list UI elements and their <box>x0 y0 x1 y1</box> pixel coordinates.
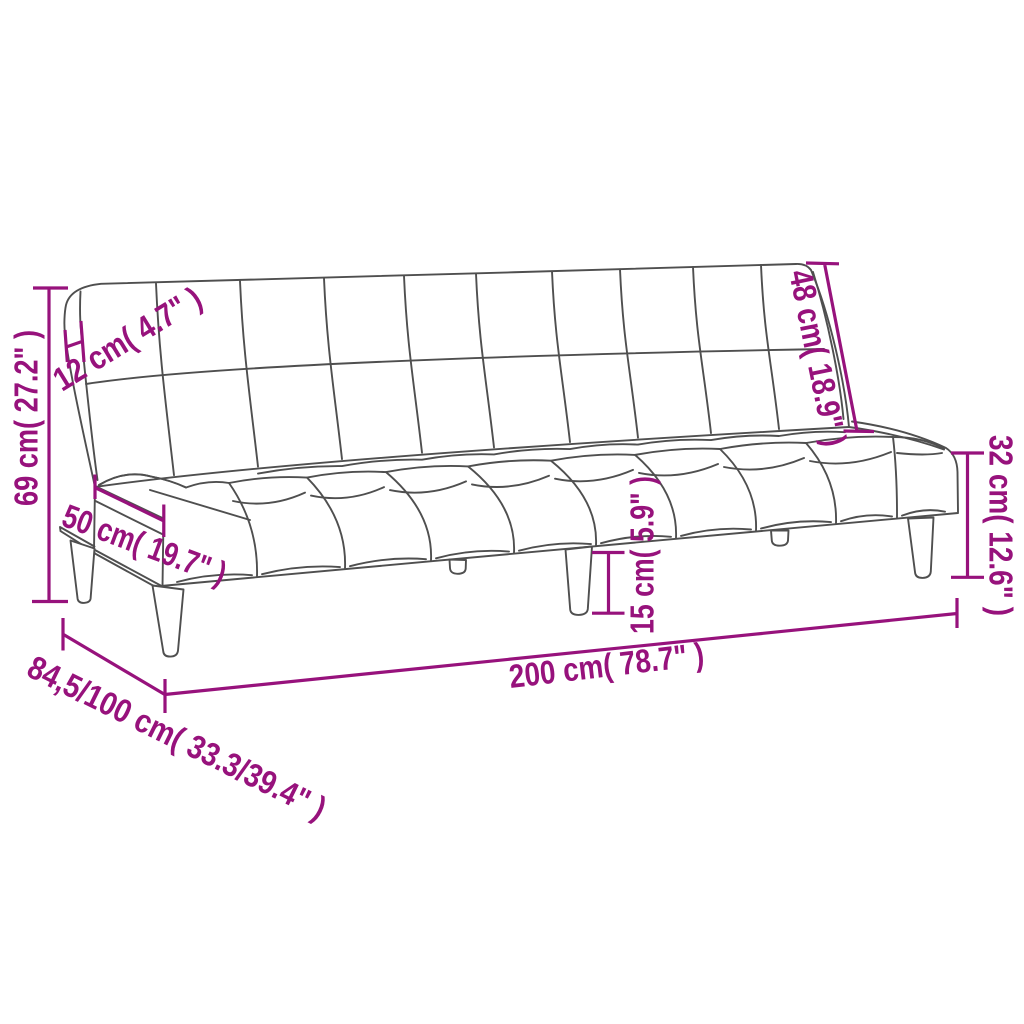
svg-text:200 cm( 78.7" ): 200 cm( 78.7" ) <box>507 635 706 695</box>
svg-text:69 cm( 27.2" ): 69 cm( 27.2" ) <box>8 330 45 506</box>
svg-text:32 cm( 12.6" ): 32 cm( 12.6" ) <box>983 435 1020 616</box>
svg-text:15 cm( 5.9" ): 15 cm( 5.9" ) <box>624 476 661 634</box>
svg-text:84,5/100 cm( 33.3/39.4" ): 84,5/100 cm( 33.3/39.4" ) <box>22 648 332 826</box>
